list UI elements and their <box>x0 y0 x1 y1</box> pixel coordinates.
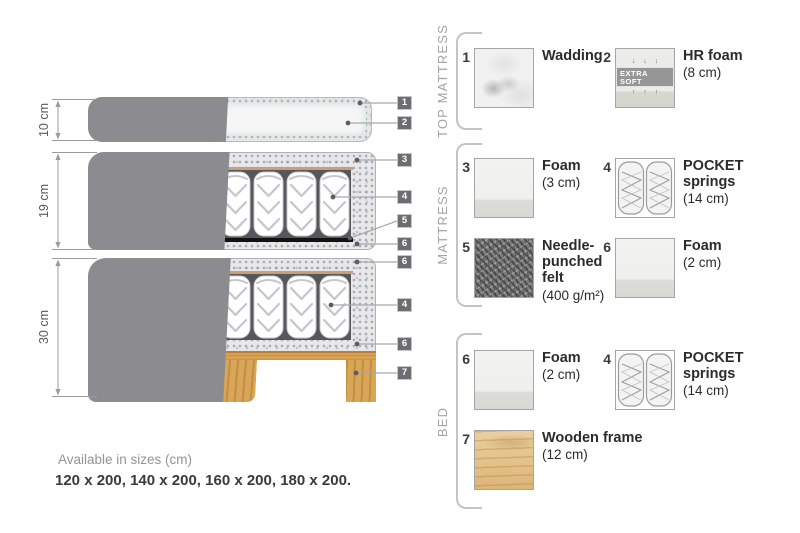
foam-swatch <box>474 350 534 410</box>
layer-tag-6b: 6 <box>397 255 412 269</box>
layer-tag-6c: 6 <box>397 337 412 351</box>
bed-interior <box>218 258 376 402</box>
section-label-bed: BED <box>435 322 451 522</box>
cross-section-mattress <box>88 152 376 250</box>
legend-item-wadding: 1 Wadding <box>454 48 608 108</box>
legend-item-name: POCKET springs <box>683 158 749 190</box>
legend-item-number: 4 <box>595 158 611 175</box>
felt-layer <box>219 238 353 242</box>
legend-item-foam-3cm: 3 Foam (3 cm) <box>454 158 608 218</box>
cross-section-bed <box>88 258 376 402</box>
legend-item-foam-2cm-bed: 6 Foam (2 cm) <box>454 350 608 410</box>
component-legend: TOP MATTRESS MATTRESS BED 1 Wadding 2 ↓ … <box>430 0 800 533</box>
mattress-cover <box>88 152 222 250</box>
felt-swatch <box>474 238 534 298</box>
legend-item-size: (12 cm) <box>542 447 668 463</box>
legend-item-name: Foam <box>683 238 749 254</box>
legend-item-number: 6 <box>454 350 470 367</box>
dimension-label-bed: 30 cm <box>37 297 51 357</box>
wadding-layer <box>218 97 372 142</box>
legend-item-number: 2 <box>595 48 611 65</box>
layer-tag-3: 3 <box>397 153 412 167</box>
hr-foam-swatch: ↓ ↓ ↓ EXTRA SOFT ↑ ↑ ↑ <box>615 48 675 108</box>
sizes-values: 120 x 200, 140 x 200, 160 x 200, 180 x 2… <box>55 472 351 489</box>
legend-item-number: 5 <box>454 238 470 255</box>
layer-tag-6: 6 <box>397 237 412 251</box>
legend-item-number: 3 <box>454 158 470 175</box>
arrows-down-icon: ↓ ↓ ↓ <box>632 58 661 65</box>
wooden-rail <box>218 351 376 360</box>
legend-item-pocket-springs: 4 POCKET springs (14 cm) <box>595 158 749 218</box>
legend-item-number: 6 <box>595 238 611 255</box>
legend-item-pocket-springs-bed: 4 POCKET springs (14 cm) <box>595 350 749 410</box>
legend-item-hr-foam: 2 ↓ ↓ ↓ EXTRA SOFT ↑ ↑ ↑ HR foam (8 cm) <box>595 48 764 108</box>
cross-section-diagram: 10 cm 19 cm 30 cm 1 2 3 4 5 6 6 4 6 7 Av… <box>0 0 430 533</box>
available-sizes: Available in sizes (cm) 120 x 200, 140 x… <box>55 452 351 489</box>
wadding-swatch <box>474 48 534 108</box>
wood-swatch <box>474 430 534 490</box>
pocket-springs-layer <box>219 170 351 238</box>
legend-item-size: (14 cm) <box>683 191 749 207</box>
legend-item-number: 4 <box>595 350 611 367</box>
wooden-leg <box>346 360 376 402</box>
cross-section-top-mattress <box>88 97 372 142</box>
foam-swatch <box>615 238 675 298</box>
pocket-springs-swatch <box>615 158 675 218</box>
pocket-springs-icon <box>616 159 674 217</box>
layer-tag-7: 7 <box>397 366 412 380</box>
layer-tag-4: 4 <box>397 190 412 204</box>
dimension-label-mattress: 19 cm <box>37 171 51 231</box>
foam-casing <box>218 152 376 250</box>
layer-tag-5: 5 <box>397 214 412 228</box>
sizes-title: Available in sizes (cm) <box>58 452 351 467</box>
pocket-springs-icon <box>616 351 674 409</box>
foam-casing <box>218 258 376 351</box>
hr-foam-layer <box>219 103 366 136</box>
mattress-cover <box>88 97 222 142</box>
bed-skirt-cover <box>88 258 222 402</box>
layer-tag-4b: 4 <box>397 298 412 312</box>
legend-item-size: (8 cm) <box>683 65 764 81</box>
pocket-springs-layer <box>219 274 351 340</box>
pocket-springs-swatch <box>615 350 675 410</box>
legend-item-number: 7 <box>454 430 470 447</box>
layer-tag-1: 1 <box>397 96 412 110</box>
layer-tag-2: 2 <box>397 116 412 130</box>
arrows-up-icon: ↑ ↑ ↑ <box>632 89 661 96</box>
foam-swatch <box>474 158 534 218</box>
legend-item-foam-2cm: 6 Foam (2 cm) <box>595 238 749 298</box>
extra-soft-badge: EXTRA SOFT <box>616 67 674 87</box>
legend-item-wooden-frame: 7 Wooden frame (12 cm) <box>454 430 668 490</box>
legend-item-name: Wooden frame <box>542 430 668 446</box>
section-label-mattress: MATTRESS <box>435 125 451 325</box>
legend-item-felt: 5 Needle-punched felt (400 g/m²) <box>454 238 608 303</box>
pocket-springs-graphic <box>219 170 351 238</box>
legend-item-name: POCKET springs <box>683 350 749 382</box>
legend-item-size: (14 cm) <box>683 383 749 399</box>
legend-item-size: (2 cm) <box>683 255 749 271</box>
legend-item-name: HR foam <box>683 48 764 64</box>
mattress-construction-infographic: 10 cm 19 cm 30 cm 1 2 3 4 5 6 6 4 6 7 Av… <box>0 0 800 533</box>
legend-item-number: 1 <box>454 48 470 65</box>
dimension-label-top-mattress: 10 cm <box>37 90 51 150</box>
pocket-springs-graphic <box>219 274 351 340</box>
